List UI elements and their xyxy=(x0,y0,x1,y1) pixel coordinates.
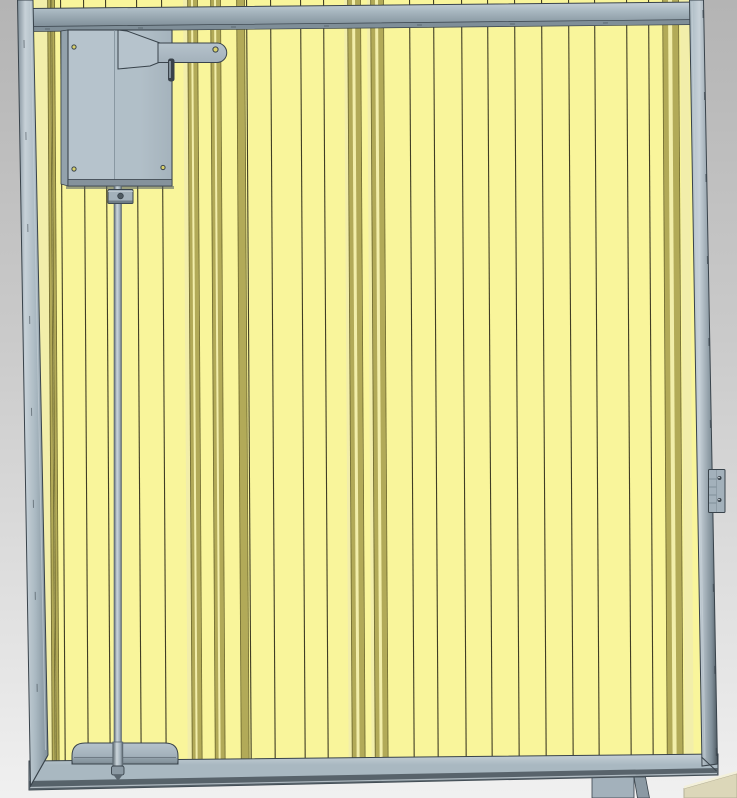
arm-pivot-hole xyxy=(213,47,218,52)
latch-screw-glint xyxy=(718,477,720,479)
actuator-arm[interactable] xyxy=(158,43,227,63)
latch-screw-glint xyxy=(718,499,720,501)
latch-pin xyxy=(168,59,175,82)
box-corner-screw xyxy=(72,167,76,171)
collar-bottom-shadow xyxy=(108,201,133,204)
cad-render-canvas[interactable] xyxy=(0,0,737,798)
collar-set-screw xyxy=(118,193,124,199)
rod-foot-collar xyxy=(112,766,125,775)
rod-shaft xyxy=(114,186,122,772)
box-corner-screw xyxy=(161,165,165,169)
box-bottom-strip xyxy=(68,180,172,187)
support-leg[interactable] xyxy=(592,777,650,798)
rod-lower-sleeve xyxy=(113,742,123,768)
cad-viewport[interactable] xyxy=(0,0,737,798)
box-side-face xyxy=(61,30,68,186)
bracket-lower-band xyxy=(73,759,177,764)
hinge-latch-plate[interactable] xyxy=(709,470,726,513)
leg-front-face xyxy=(592,777,634,798)
box-corner-screw xyxy=(72,45,76,49)
bottom-rod-bracket[interactable] xyxy=(72,743,178,764)
